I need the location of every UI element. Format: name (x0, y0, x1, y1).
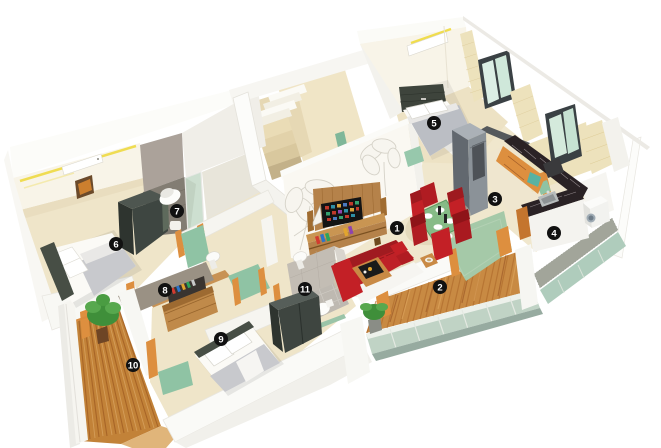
svg-text:10: 10 (128, 361, 139, 372)
svg-text:11: 11 (300, 285, 311, 296)
svg-text:1: 1 (394, 224, 400, 235)
svg-text:7: 7 (174, 207, 179, 218)
svg-text:8: 8 (162, 286, 167, 297)
svg-text:5: 5 (431, 119, 437, 130)
svg-text:2: 2 (437, 283, 442, 294)
svg-text:6: 6 (113, 240, 118, 251)
svg-text:3: 3 (492, 195, 497, 206)
svg-text:9: 9 (218, 335, 223, 346)
svg-text:4: 4 (551, 229, 557, 240)
